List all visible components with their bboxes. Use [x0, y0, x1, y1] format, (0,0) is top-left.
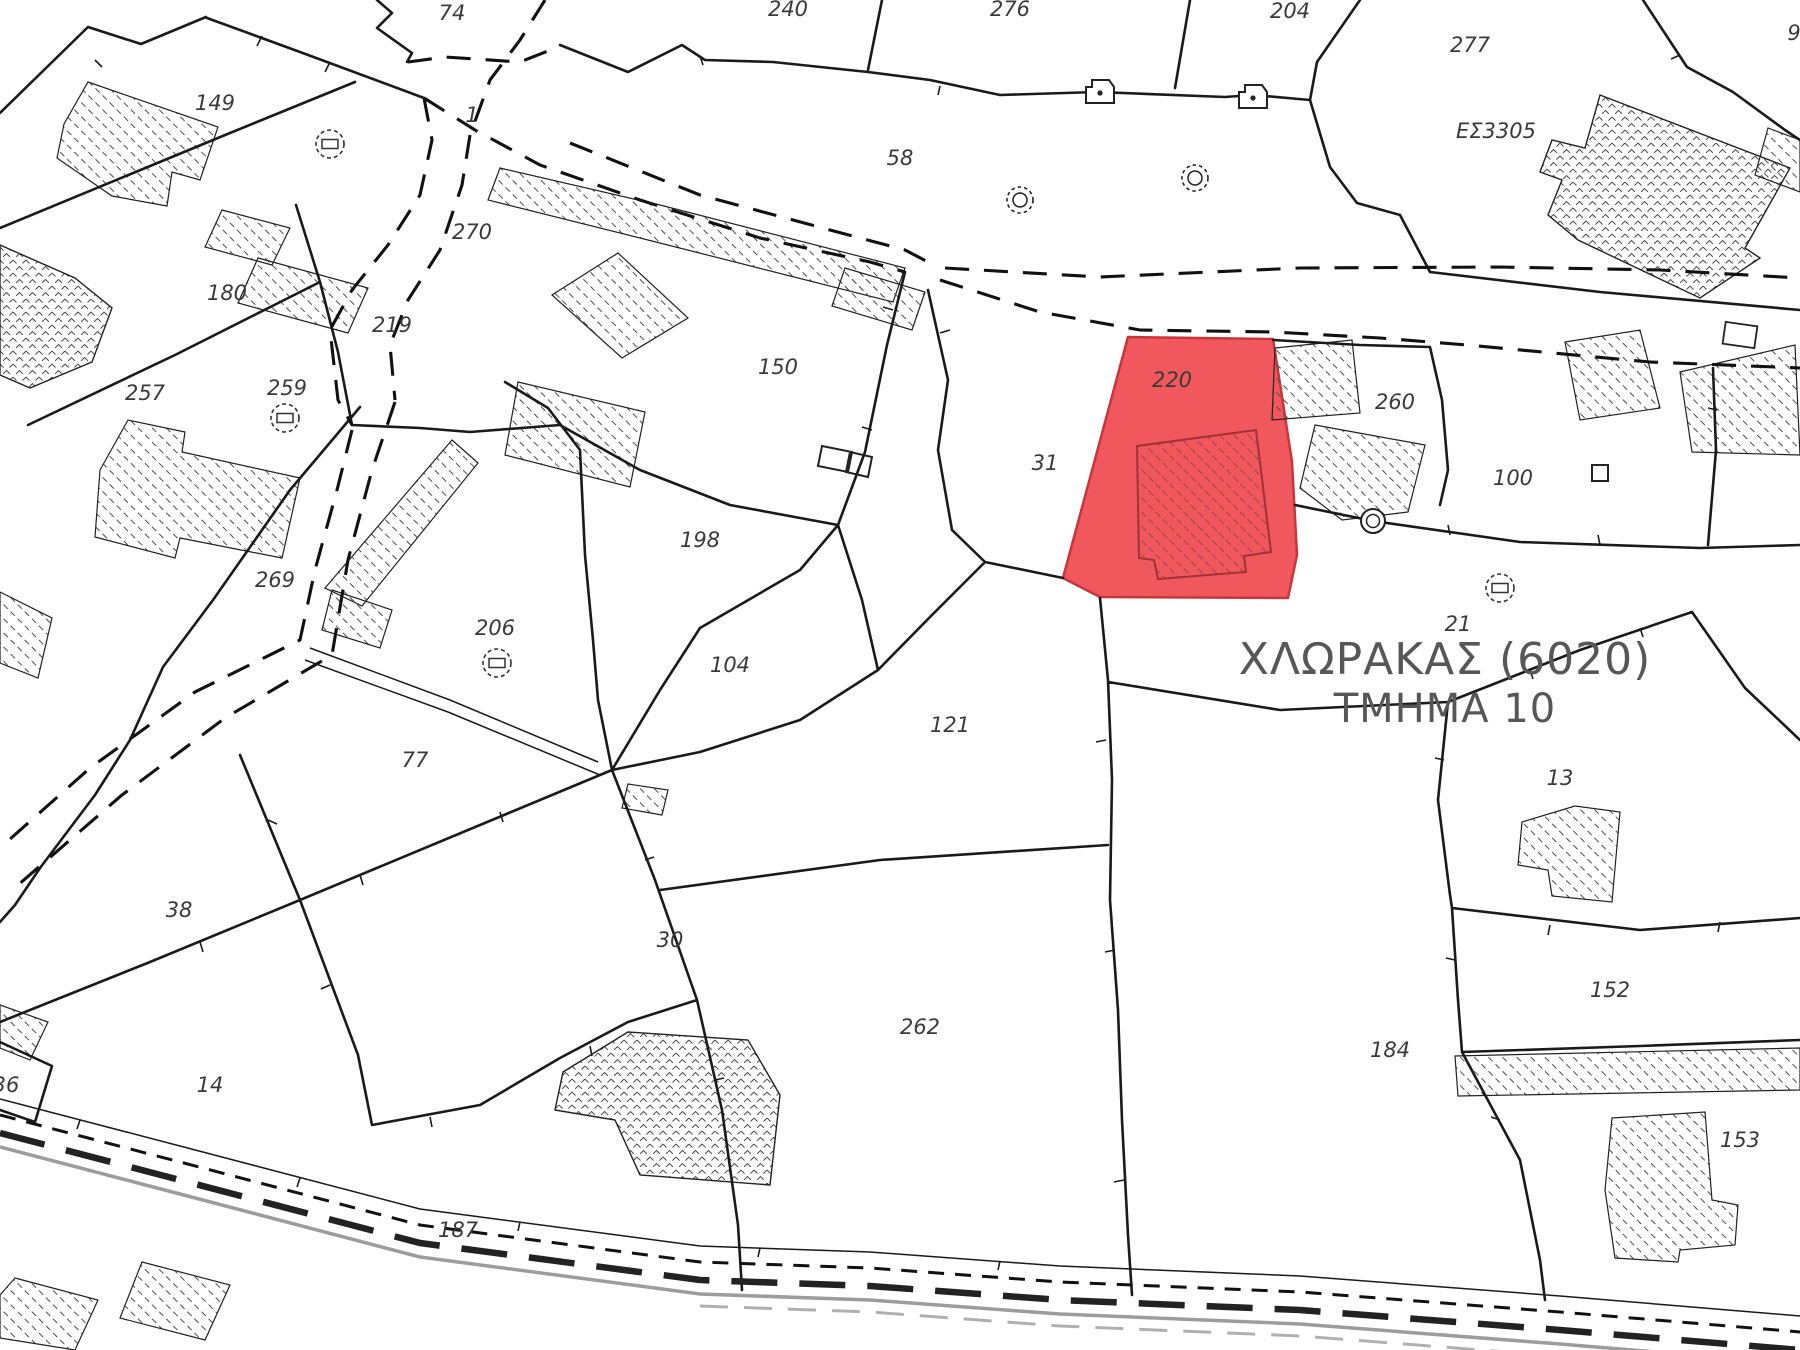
parcel-label-219: 219: [372, 313, 412, 337]
parcel-label-276: 276: [990, 0, 1030, 21]
parcel-label-21: 21: [1445, 612, 1472, 636]
building: [0, 592, 52, 678]
parcel-label-150: 150: [758, 355, 798, 379]
building: [238, 258, 368, 333]
building: [1680, 345, 1800, 455]
track-road: [305, 648, 600, 775]
parcel-label-74: 74: [439, 1, 466, 25]
small-structures: [818, 446, 872, 477]
building: [57, 82, 218, 206]
parcel-label-ΕΣ3305: ΕΣ3305: [1456, 119, 1536, 143]
building: [555, 1032, 780, 1185]
well-icon: [483, 649, 511, 677]
well-icon: [316, 130, 344, 158]
parcel-label-204: 204: [1270, 0, 1310, 23]
building: [1565, 330, 1660, 420]
parcel-label-149: 149: [195, 91, 235, 115]
well-icon: [271, 404, 299, 432]
well-icon: [1486, 574, 1514, 602]
parcel-label-240: 240: [768, 0, 808, 21]
parcel-label-187: 187: [438, 1218, 479, 1242]
ring-dashed-icon: [1182, 165, 1208, 191]
building: [1300, 425, 1425, 520]
parcel-label-1: 1: [465, 103, 478, 127]
parcel-label-269: 269: [255, 568, 295, 592]
building: [1455, 1048, 1800, 1096]
parcel-label-184: 184: [1370, 1038, 1410, 1062]
ring-icon: [1361, 509, 1385, 533]
parcel-label-206: 206: [475, 616, 515, 640]
parcel-label-152: 152: [1590, 978, 1630, 1002]
parcel-label-198: 198: [680, 528, 720, 552]
house-icon: [1086, 80, 1114, 103]
parcel-label-121: 121: [930, 713, 970, 737]
parcel-label-257: 257: [125, 381, 166, 405]
parcel-label-270: 270: [452, 220, 492, 244]
parcel-label-14: 14: [197, 1073, 224, 1097]
house-icon: [1239, 85, 1267, 108]
building: [1605, 1112, 1738, 1262]
ring-dashed-icon: [1007, 187, 1033, 213]
building: [325, 440, 478, 606]
parcel-label-259: 259: [267, 376, 307, 400]
parcel-label-153: 153: [1720, 1128, 1760, 1152]
parcel-label-36: 36: [0, 1073, 19, 1097]
parcel-label-13: 13: [1547, 766, 1574, 790]
map-canvas: 7414912402762042779ΕΣ3305582701802191502…: [0, 0, 1800, 1350]
parcel-label-100: 100: [1493, 466, 1533, 490]
parcel-label-180: 180: [207, 281, 247, 305]
main-road: [0, 1099, 1800, 1350]
building: [95, 420, 300, 558]
building: [1518, 806, 1620, 902]
building: [322, 590, 392, 648]
map-subtitle: ΤΜΗΜΑ 10: [1333, 686, 1557, 732]
cadastral-map: 7414912402762042779ΕΣ3305582701802191502…: [0, 0, 1800, 1350]
parcel-label-104: 104: [710, 653, 750, 677]
parcel-label-58: 58: [887, 146, 914, 170]
parcel-label-38: 38: [166, 898, 193, 922]
parcel-label-77: 77: [402, 748, 429, 772]
parcel-label-31: 31: [1032, 451, 1059, 475]
parcel-label-277: 277: [1450, 33, 1491, 57]
square-icon: [1592, 465, 1608, 481]
rect-icon: [1723, 322, 1758, 348]
parcel-label-30: 30: [657, 928, 684, 952]
parcel-label-220: 220: [1152, 368, 1192, 392]
building: [0, 245, 112, 388]
parcel-label-9: 9: [1787, 21, 1800, 45]
building: [552, 253, 688, 358]
parcel-label-262: 262: [900, 1015, 940, 1039]
map-title: ΧΛΩΡΑΚΑΣ (6020): [1239, 634, 1652, 685]
building: [205, 210, 290, 265]
building: [0, 1278, 98, 1350]
icons-layer: [271, 80, 1757, 677]
building: [1272, 340, 1360, 420]
parcel-label-260: 260: [1375, 390, 1415, 414]
building: [120, 1262, 230, 1340]
